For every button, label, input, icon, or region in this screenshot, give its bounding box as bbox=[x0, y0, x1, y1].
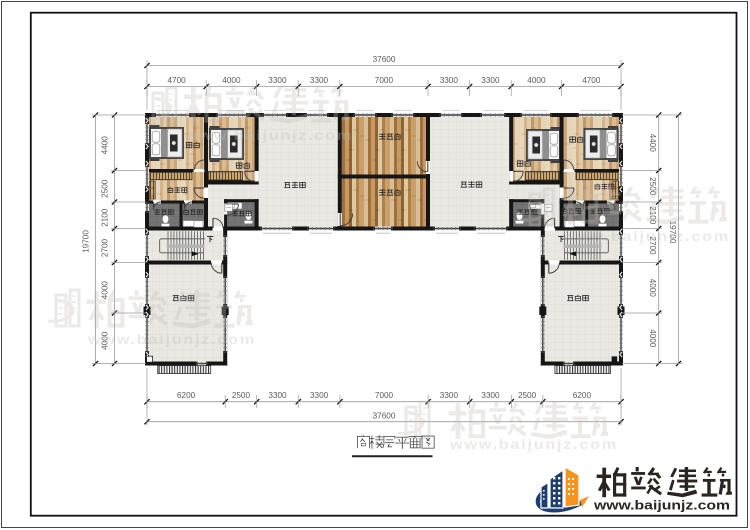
svg-text:3300: 3300 bbox=[481, 391, 500, 400]
svg-text:6200: 6200 bbox=[177, 391, 196, 400]
svg-text:www.baijunjz.com: www.baijunjz.com bbox=[184, 127, 353, 143]
svg-text:2500: 2500 bbox=[101, 179, 110, 198]
svg-text:4000: 4000 bbox=[101, 281, 110, 300]
svg-text:6200: 6200 bbox=[573, 391, 592, 400]
svg-text:3300: 3300 bbox=[310, 76, 329, 85]
svg-text:3300: 3300 bbox=[440, 76, 459, 85]
svg-text:www.baijunjz.com: www.baijunjz.com bbox=[593, 499, 730, 513]
svg-text:37600: 37600 bbox=[373, 55, 396, 64]
svg-text:4700: 4700 bbox=[582, 76, 601, 85]
svg-text:19700: 19700 bbox=[82, 230, 91, 253]
svg-text:7000: 7000 bbox=[375, 391, 394, 400]
svg-text:4700: 4700 bbox=[167, 76, 186, 85]
svg-text:2100: 2100 bbox=[101, 208, 110, 227]
svg-text:4400: 4400 bbox=[648, 134, 657, 153]
svg-text:3300: 3300 bbox=[440, 391, 459, 400]
svg-text:3300: 3300 bbox=[310, 391, 329, 400]
svg-text:4000: 4000 bbox=[222, 76, 241, 85]
svg-text:3300: 3300 bbox=[481, 76, 500, 85]
svg-text:www.baijunjz.com: www.baijunjz.com bbox=[449, 436, 618, 452]
svg-text:2700: 2700 bbox=[101, 238, 110, 257]
svg-text:3300: 3300 bbox=[268, 391, 287, 400]
svg-text:3300: 3300 bbox=[268, 76, 287, 85]
svg-text:7000: 7000 bbox=[375, 76, 394, 85]
svg-text:4000: 4000 bbox=[648, 329, 657, 348]
svg-text:www.baijunjz.com: www.baijunjz.com bbox=[87, 331, 256, 347]
svg-text:4000: 4000 bbox=[527, 76, 546, 85]
svg-text:2500: 2500 bbox=[518, 391, 537, 400]
svg-text:4000: 4000 bbox=[648, 279, 657, 298]
svg-text:2500: 2500 bbox=[232, 391, 251, 400]
svg-text:www.baijunjz.com: www.baijunjz.com bbox=[561, 228, 730, 244]
svg-text:4400: 4400 bbox=[101, 136, 110, 155]
svg-text:37600: 37600 bbox=[373, 412, 396, 421]
